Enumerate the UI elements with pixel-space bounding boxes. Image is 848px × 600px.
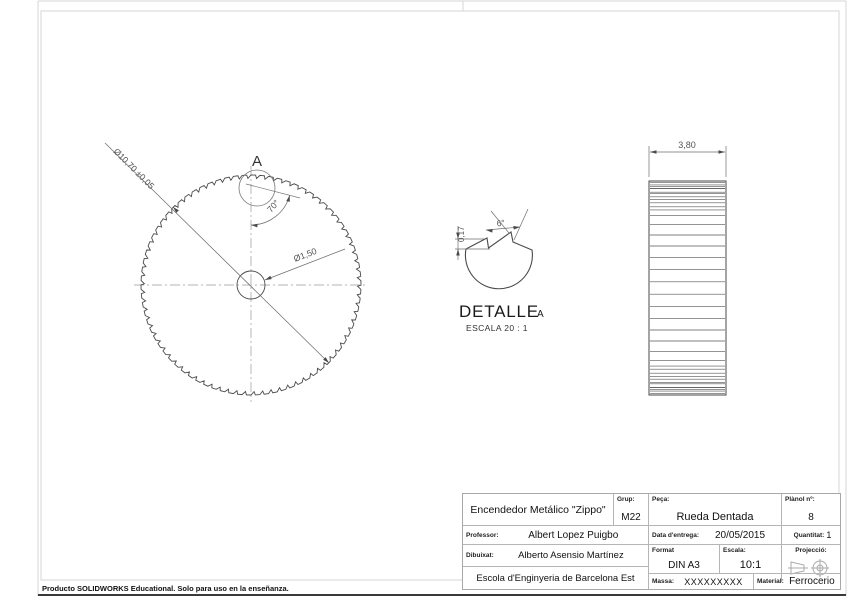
mass-value: XXXXXXXXX [674,577,753,587]
title-block-format-cell: Format DIN A3 [648,544,719,573]
school-name: Escola d'Enginyeria de Barcelona Est [476,573,634,584]
tooth-angle-dim-text: 6° [496,218,505,229]
title-block-professor-cell: Professor: Albert Lopez Puigbo [463,525,648,544]
sheet-number-value: 8 [782,512,840,523]
group-value: M22 [614,512,648,523]
title-block-project-cell: Encendedor Metálico "Zippo" [463,494,613,525]
angle-dim-text: 70° [265,198,281,215]
title-block-due-date-cell: Data d'entrega: 20/05/2015 [648,525,781,544]
side-view-tooth-lines [650,183,725,394]
width-dim-text: 3,80 [678,140,696,150]
centerlines [134,166,368,402]
professor-value: Albert Lopez Puigbo [499,530,648,541]
title-block-scale-cell: Escala: 10:1 [719,544,781,573]
due-date-value: 20/05/2015 [699,530,781,541]
due-date-label: Data d'entrega: [652,532,699,539]
title-block-part-cell: Peça: Rueda Dentada [648,494,781,525]
detail-tooth-profile [465,232,532,289]
material-label: Material: [757,578,784,585]
title-block-sheet-number-cell: Plànol nº: 8 [781,494,840,525]
side-view-outline [649,181,726,395]
part-value: Rueda Dentada [649,511,781,523]
title-block-drawn-by-cell: Dibuixat: Alberto Asensio Martínez [463,544,648,566]
detail-scale: ESCALA 20 : 1 [466,323,528,333]
diameter-dim-text: Ø10,70 ±0,05 [112,146,157,191]
scale-value: 10:1 [720,559,781,571]
format-label: Format [652,547,674,554]
sheet-bottom-rule [38,594,846,596]
quantity-value: 1 [826,530,831,540]
side-view: 3,80 [649,140,726,395]
professor-label: Professor: [466,532,499,539]
detail-title-ref: A [537,309,544,320]
projection-label: Projecció: [782,547,840,554]
title-block-material-cell: Material: Ferrocerio [753,573,840,589]
dimension-arrowheads [173,150,725,363]
material-value: Ferrocerio [784,576,840,587]
detail-view: 0,17 6° DETALLE A ESCALA 20 : 1 [455,209,544,333]
detail-callout-label: A [252,153,262,170]
group-label: Grup: [617,496,635,503]
format-value: DIN A3 [649,560,719,571]
part-label: Peça: [652,496,669,503]
project-title: Encendedor Metálico "Zippo" [470,504,605,516]
title-block-mass-cell: Massa: XXXXXXXXX [648,573,753,589]
title-block-quantity-cell: Quantitat: 1 [781,525,840,544]
drawn-by-value: Alberto Asensio Martínez [494,550,648,561]
scale-label: Escala: [723,547,746,554]
mass-label: Massa: [652,578,674,585]
width-dim-lines [649,146,726,177]
drawn-by-label: Dibuixat: [466,552,494,559]
quantity-label: Quantitat: [794,532,825,539]
title-block-group-cell: Grup: M22 [613,494,648,525]
title-block-school-cell: Escola d'Enginyeria de Barcelona Est [463,566,648,589]
solidworks-educational-note: Producto SOLIDWORKS Educational. Solo pa… [42,584,289,593]
detail-title: DETALLE [459,302,539,321]
sheet-number-label: Plànol nº: [785,496,815,503]
front-view: A Ø10,70 ±0,05 Ø1,50 70° [105,143,368,402]
title-block: Encendedor Metálico "Zippo" Grup: M22 Pe… [462,493,841,590]
detail-callout-circle [239,170,275,206]
